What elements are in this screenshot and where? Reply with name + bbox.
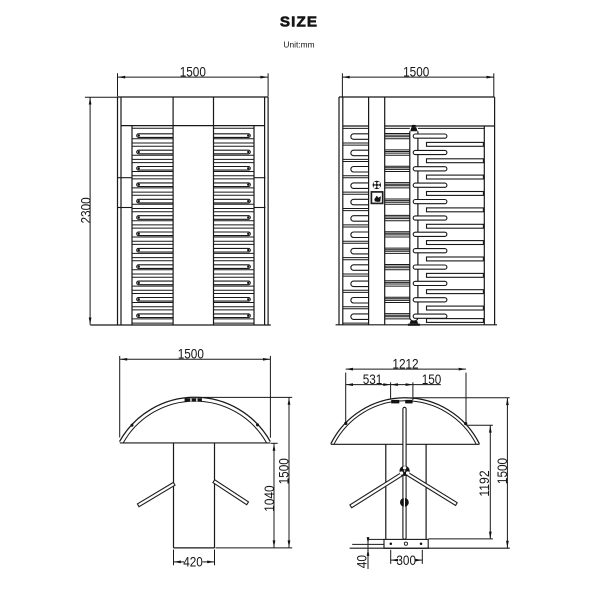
svg-text:1192: 1192: [477, 470, 492, 496]
svg-text:150: 150: [422, 372, 442, 387]
svg-text:300: 300: [396, 553, 416, 568]
svg-text:1500: 1500: [277, 458, 292, 485]
svg-text:1040: 1040: [262, 485, 277, 512]
svg-text:40: 40: [355, 555, 370, 569]
svg-text:2300: 2300: [78, 197, 93, 224]
svg-text:1212: 1212: [392, 356, 418, 371]
svg-text:1500: 1500: [180, 64, 207, 79]
svg-text:Unit:mm: Unit:mm: [283, 40, 314, 50]
svg-text:SIZE: SIZE: [280, 13, 318, 30]
svg-text:1500: 1500: [403, 64, 430, 79]
svg-text:1500: 1500: [178, 347, 205, 362]
svg-text:531: 531: [363, 372, 383, 387]
svg-text:1500: 1500: [495, 458, 510, 485]
svg-text:420: 420: [183, 555, 203, 570]
